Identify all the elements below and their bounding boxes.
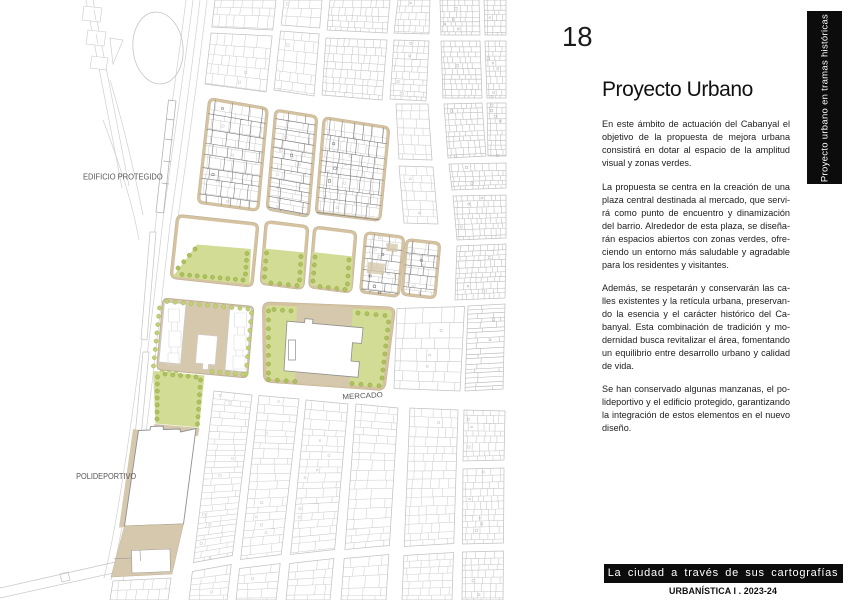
svg-text:EDIFICIO PROTEGIDO: EDIFICIO PROTEGIDO [83,172,163,181]
svg-text:MERCADO: MERCADO [342,390,383,401]
svg-text:POLIDEPORTIVO: POLIDEPORTIVO [76,472,136,481]
